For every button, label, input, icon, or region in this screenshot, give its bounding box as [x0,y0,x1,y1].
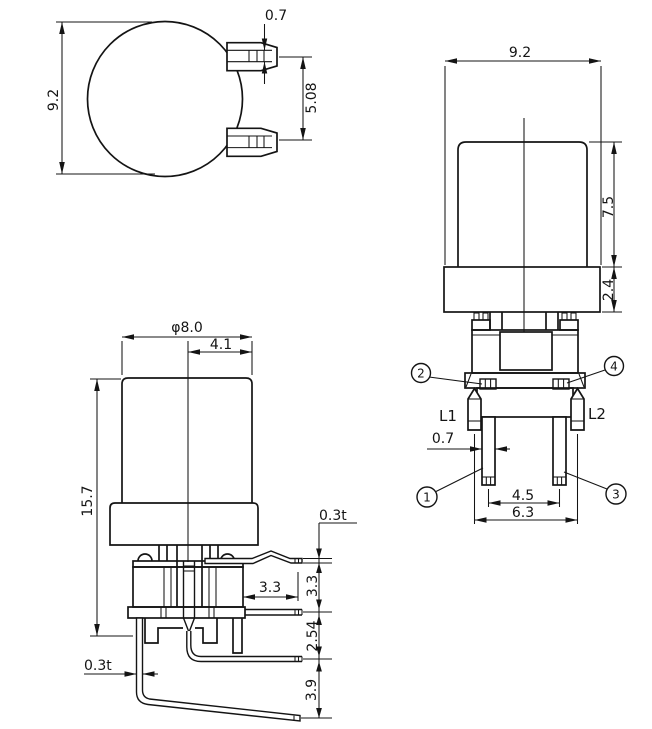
lead-middle-straight [245,610,302,616]
dim-lead-gap-3-label: 3.9 [304,679,320,701]
dim-front-width: 9.2 [445,45,601,265]
upper-terminal-tab [227,43,277,71]
lead-bottom-long [137,618,301,721]
dim-lead-reach-label: 3.3 [259,580,281,596]
dim-top-width-label: 9.2 [46,89,62,111]
callout-4-number: 4 [610,360,618,374]
callout-3-number: 3 [612,488,620,502]
lower-terminal-tab [227,128,277,156]
side-switch-body [133,567,243,607]
side-cap-outline [122,378,252,503]
dim-lead-gap-1-label: 3.3 [305,575,321,597]
side-view: φ8.0 4.1 15.7 [80,320,357,721]
dim-cap-diameter-label: φ8.0 [171,320,203,336]
mounting-feet [145,618,242,653]
dim-cap-offset-label: 4.1 [210,337,232,353]
pin-left [482,417,495,485]
dim-top-width: 9.2 [46,22,155,174]
callout-4: 4 [567,357,624,384]
dim-pin-spacing-label: 4.5 [512,488,534,504]
lead-upper-wavy [205,551,302,564]
dim-chain-right: 0.3t 3.3 2.54 3.9 [301,508,357,718]
dim-collar-height: 2.4 [601,267,622,312]
dim-lead-gap-2-label: 2.54 [305,620,321,651]
dim-lead-thickness-lower-label: 0.3t [84,658,112,674]
dim-lead-reach: 3.3 [243,572,298,601]
cap-circle-outline [88,22,243,177]
dim-pin-width-label: 0.7 [432,431,454,447]
front-view: 9.2 7.5 2.4 [412,45,627,524]
dim-top-terminal-spacing: 5.08 [279,57,320,140]
technical-drawing: 9.2 0.7 5.08 9.2 [0,0,652,729]
dim-lead-thickness-upper-label: 0.3t [319,508,347,524]
callout-1-number: 1 [423,491,431,505]
lamp-clip-right [571,389,584,431]
lower-housing [477,388,573,417]
dim-front-width-label: 9.2 [509,45,531,61]
dim-terminal-thickness-label: 0.7 [265,8,287,24]
pin-right [553,417,566,485]
dim-total-height-label: 15.7 [80,485,96,516]
cap-collar [444,267,600,312]
dim-terminal-spacing-label: 5.08 [304,82,320,113]
dim-pin-width: 0.7 [427,431,510,449]
lamp-lead-left-label: L1 [439,407,457,425]
drawing-canvas: 9.2 0.7 5.08 9.2 [0,0,652,729]
dim-cap-diameter: φ8.0 [122,320,252,375]
side-cap-collar [110,503,258,545]
dim-total-height: 15.7 [80,379,133,636]
base-plate [465,373,585,389]
dim-lamp-lead-spacing-label: 6.3 [512,505,534,521]
dim-cap-height-label: 7.5 [601,196,617,218]
side-base-flange [128,607,245,618]
dim-cap-height: 7.5 [589,142,622,267]
lamp-lead-right-label: L2 [588,405,606,423]
dim-cap-offset: 4.1 [188,337,252,353]
callout-3: 3 [564,472,626,504]
top-view: 9.2 0.7 5.08 [46,8,320,177]
actuator-block [500,332,552,370]
dim-lead-thickness-lower: 0.3t [84,658,158,674]
corner-posts [472,313,578,330]
cap-outline [458,142,587,267]
lamp-clip-left [468,389,481,431]
callout-2-number: 2 [417,367,425,381]
callout-1: 1 [417,468,483,507]
dim-collar-height-label: 2.4 [601,279,617,301]
